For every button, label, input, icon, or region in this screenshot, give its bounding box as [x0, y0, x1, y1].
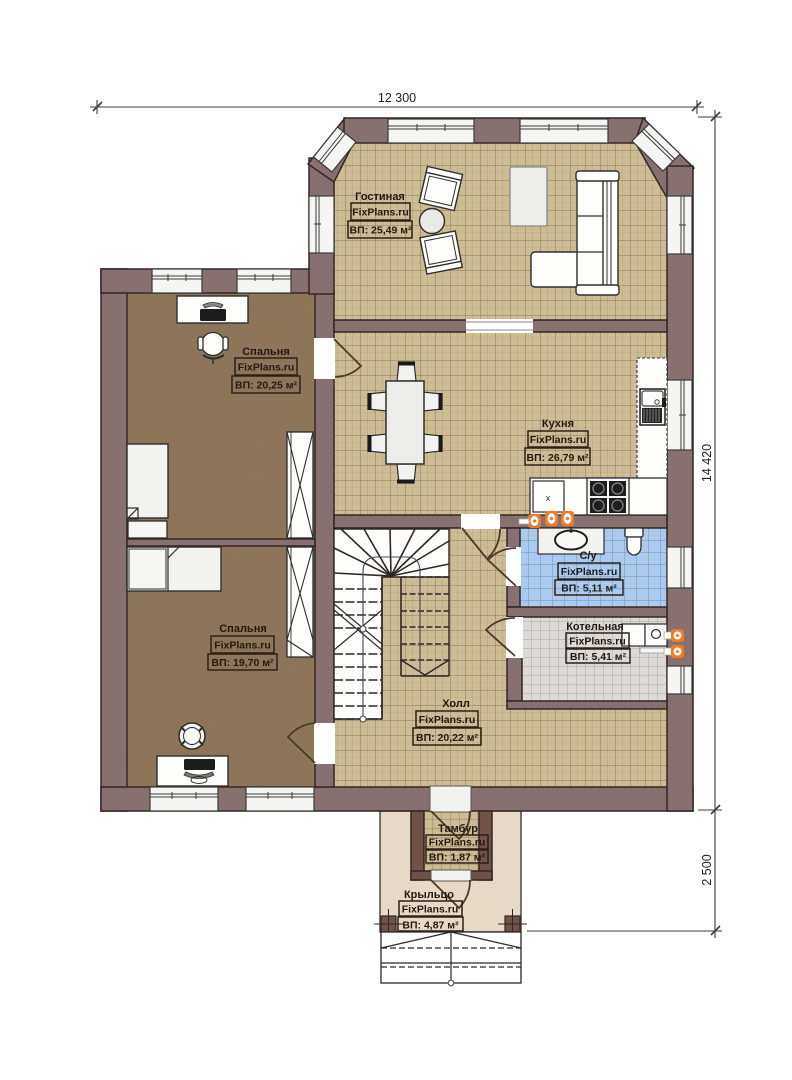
svg-text:Гостиная: Гостиная	[355, 191, 405, 203]
svg-text:ВП: 5,41 м²: ВП: 5,41 м²	[570, 651, 627, 663]
svg-text:FixPlans.ru: FixPlans.ru	[561, 566, 618, 578]
svg-text:ВП: 25,49 м²: ВП: 25,49 м²	[349, 225, 412, 237]
svg-text:ВП: 26,79 м²: ВП: 26,79 м²	[526, 452, 589, 464]
svg-text:FixPlans.ru: FixPlans.ru	[419, 714, 476, 726]
svg-text:Котельная: Котельная	[566, 621, 624, 633]
svg-text:FixPlans.ru: FixPlans.ru	[402, 904, 459, 916]
svg-text:С/у: С/у	[579, 550, 597, 562]
svg-text:FixPlans.ru: FixPlans.ru	[238, 362, 295, 374]
svg-text:12 300: 12 300	[378, 91, 416, 105]
svg-text:x: x	[546, 493, 551, 503]
svg-text:Крыльцо: Крыльцо	[404, 889, 454, 901]
svg-text:Холл: Холл	[442, 698, 470, 710]
svg-text:Спальня: Спальня	[219, 623, 267, 635]
svg-text:ВП: 20,25 м²: ВП: 20,25 м²	[235, 380, 298, 392]
svg-text:ВП: 5,11 м²: ВП: 5,11 м²	[561, 583, 617, 595]
svg-text:FixPlans.ru: FixPlans.ru	[429, 837, 486, 849]
svg-text:ВП: 20,22 м²: ВП: 20,22 м²	[416, 732, 479, 744]
svg-text:2 500: 2 500	[700, 854, 714, 885]
svg-text:Тамбур: Тамбур	[438, 823, 478, 835]
svg-text:FixPlans.ru: FixPlans.ru	[352, 207, 409, 219]
svg-text:FixPlans.ru: FixPlans.ru	[530, 434, 587, 446]
svg-text:Кухня: Кухня	[542, 418, 574, 430]
svg-text:14 420: 14 420	[700, 444, 714, 482]
svg-text:ВП: 4,87 м²: ВП: 4,87 м²	[402, 920, 459, 932]
svg-text:Спальня: Спальня	[242, 346, 290, 358]
svg-text:FixPlans.ru: FixPlans.ru	[214, 640, 271, 652]
svg-text:ВП: 19,70 м²: ВП: 19,70 м²	[211, 657, 274, 669]
svg-text:ВП: 1,87 м²: ВП: 1,87 м²	[429, 852, 486, 864]
svg-text:FixPlans.ru: FixPlans.ru	[569, 636, 626, 648]
